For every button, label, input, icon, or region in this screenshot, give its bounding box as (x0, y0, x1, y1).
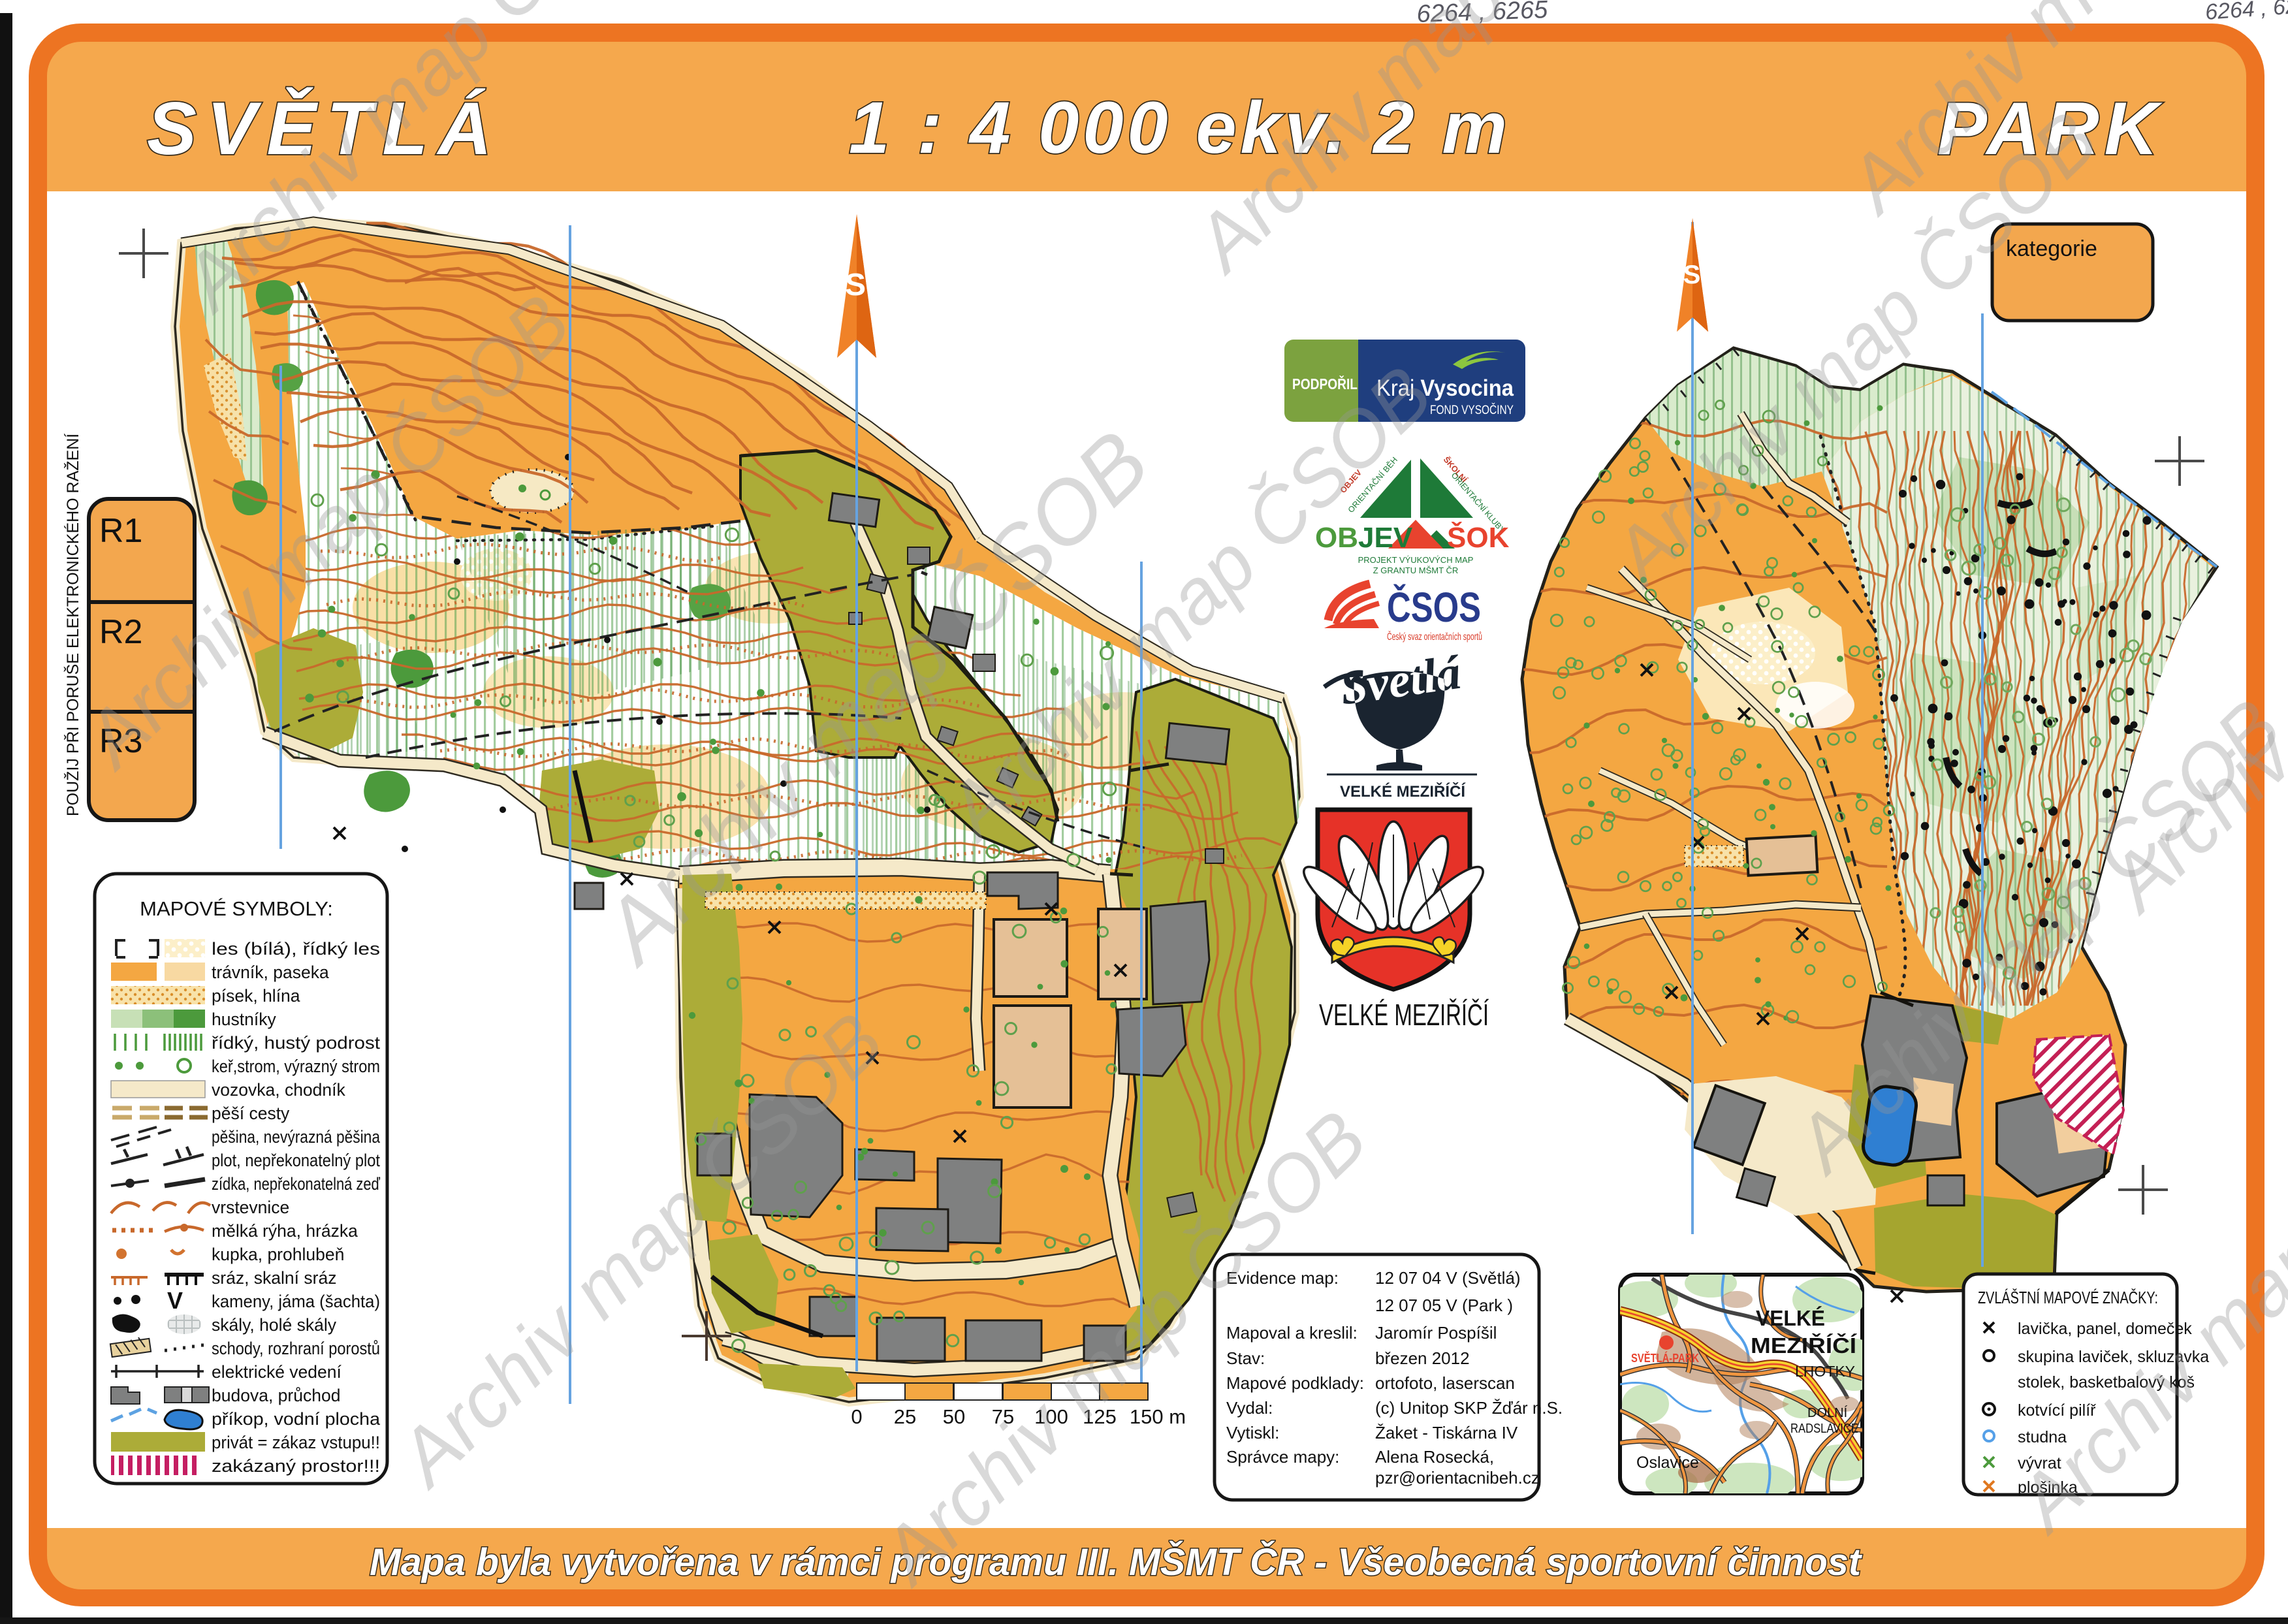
svg-text:VELKÉ MEZIŘÍČÍ: VELKÉ MEZIŘÍČÍ (1319, 998, 1489, 1032)
svg-text:vozovka, chodník: vozovka, chodník (212, 1080, 346, 1100)
svg-text:pzr@orientacnibeh.cz: pzr@orientacnibeh.cz (1375, 1468, 1540, 1488)
svg-text:Mapa byla vytvořena v rámci pr: Mapa byla vytvořena v rámci programu III… (370, 1541, 1863, 1584)
svg-text:budova, průchod: budova, průchod (212, 1386, 340, 1405)
svg-text:schody, rozhraní porostů: schody, rozhraní porostů (212, 1339, 380, 1358)
svg-text:VELKÉ MEZIŘÍČÍ: VELKÉ MEZIŘÍČÍ (1340, 782, 1466, 801)
svg-text:příkop, vodní plocha: příkop, vodní plocha (212, 1409, 380, 1429)
svg-text:mělká rýha, hrázka: mělká rýha, hrázka (212, 1221, 358, 1241)
svg-text:Český svaz orientačních sportů: Český svaz orientačních sportů (1387, 630, 1482, 643)
svg-text:12 07 04 V (Světlá): 12 07 04 V (Světlá) (1375, 1268, 1521, 1288)
svg-text:Mapoval a kreslil:: Mapoval a kreslil: (1226, 1323, 1358, 1343)
svg-text:Správce mapy:: Správce mapy: (1226, 1447, 1339, 1467)
svg-text:ČSOS: ČSOS (1387, 583, 1481, 631)
svg-text:ŠOK: ŠOK (1447, 520, 1510, 554)
svg-text:trávník, paseka: trávník, paseka (212, 963, 329, 982)
svg-text:R1: R1 (99, 512, 142, 550)
svg-text:kupka, prohlubeň: kupka, prohlubeň (212, 1245, 344, 1264)
svg-text:Mapové podklady:: Mapové podklady: (1226, 1373, 1364, 1393)
svg-text:hustníky: hustníky (212, 1010, 276, 1029)
svg-text:150 m: 150 m (1130, 1405, 1186, 1428)
svg-text:LHOTKY: LHOTKY (1795, 1363, 1855, 1380)
svg-text:JEV: JEV (1358, 522, 1413, 554)
svg-text:25: 25 (894, 1405, 916, 1428)
svg-text:POUŽIJ PŘI PORUŠE ELEKTRONICKÉ: POUŽIJ PŘI PORUŠE ELEKTRONICKÉHO RAŽENÍ (63, 434, 82, 816)
svg-text:12 07 05 V (Park ): 12 07 05 V (Park ) (1375, 1296, 1513, 1315)
svg-text:Vytiskl:: Vytiskl: (1226, 1423, 1279, 1442)
svg-text:pěší cesty: pěší cesty (212, 1104, 290, 1123)
svg-text:DOLNÍ: DOLNÍ (1807, 1405, 1848, 1420)
svg-text:PROJEKT VÝUKOVÝCH MAP: PROJEKT VÝUKOVÝCH MAP (1358, 555, 1474, 565)
svg-text:les (bílá), řídký les: les (bílá), řídký les (212, 939, 380, 959)
svg-text:Z GRANTU MŠMT ČR: Z GRANTU MŠMT ČR (1373, 565, 1458, 575)
svg-text:Vydal:: Vydal: (1226, 1398, 1273, 1418)
svg-text:keř,strom, výrazný strom: keř,strom, výrazný strom (212, 1057, 380, 1076)
svg-text:březen 2012: březen 2012 (1375, 1348, 1470, 1368)
svg-text:MEZIŘÍČÍ: MEZIŘÍČÍ (1751, 1333, 1857, 1358)
svg-text:Oslavice: Oslavice (1636, 1454, 1699, 1472)
svg-text:0: 0 (851, 1405, 862, 1428)
svg-text:VELKÉ: VELKÉ (1756, 1306, 1825, 1330)
svg-text:Alena Rosecká,: Alena Rosecká, (1375, 1447, 1494, 1467)
svg-text:skály, holé skály: skály, holé skály (212, 1315, 337, 1335)
svg-text:kameny, jáma (šachta): kameny, jáma (šachta) (212, 1292, 380, 1311)
svg-text:S: S (1683, 261, 1701, 289)
svg-text:Jaromír Pospíšil: Jaromír Pospíšil (1375, 1323, 1497, 1343)
svg-text:vrstevnice: vrstevnice (212, 1198, 289, 1217)
svg-text:sráz, skalní sráz: sráz, skalní sráz (212, 1268, 336, 1288)
svg-text:ortofoto, laserscan: ortofoto, laserscan (1375, 1373, 1515, 1393)
svg-text:elektrické vedení: elektrické vedení (212, 1362, 342, 1382)
svg-text:V: V (167, 1287, 183, 1314)
svg-text:R2: R2 (99, 613, 142, 651)
svg-text:ZVLÁŠTNÍ MAPOVÉ ZNAČKY:: ZVLÁŠTNÍ MAPOVÉ ZNAČKY: (1978, 1288, 2158, 1307)
svg-text:zídka, nepřekonatelná zeď: zídka, nepřekonatelná zeď (212, 1174, 381, 1194)
svg-text:S: S (845, 268, 866, 302)
svg-text:SVĚTLÁ-PARK: SVĚTLÁ-PARK (1631, 1351, 1699, 1365)
svg-text:6264 , 6265: 6264 , 6265 (2204, 0, 2288, 25)
svg-text:50: 50 (943, 1405, 965, 1428)
svg-text:pěšina, nevýrazná pěšina: pěšina, nevýrazná pěšina (212, 1127, 380, 1147)
svg-text:privát = zákaz vstupu!!: privát = zákaz vstupu!! (212, 1433, 380, 1452)
svg-text:MAPOVÉ SYMBOLY:: MAPOVÉ SYMBOLY: (140, 897, 333, 920)
svg-text:RADSLAVICE: RADSLAVICE (1790, 1422, 1858, 1436)
svg-text:písek, hlína: písek, hlína (212, 986, 300, 1006)
svg-text:plot, nepřekonatelný plot: plot, nepřekonatelný plot (212, 1151, 381, 1170)
svg-text:řídký, hustý podrost: řídký, hustý podrost (212, 1033, 381, 1053)
svg-text:Žaket - Tiskárna IV: Žaket - Tiskárna IV (1375, 1423, 1518, 1442)
svg-text:(c) Unitop SKP Žďár n.S.: (c) Unitop SKP Žďár n.S. (1375, 1398, 1563, 1418)
svg-text:Stav:: Stav: (1226, 1348, 1265, 1368)
svg-text:zakázaný prostor!!!: zakázaný prostor!!! (212, 1456, 380, 1476)
